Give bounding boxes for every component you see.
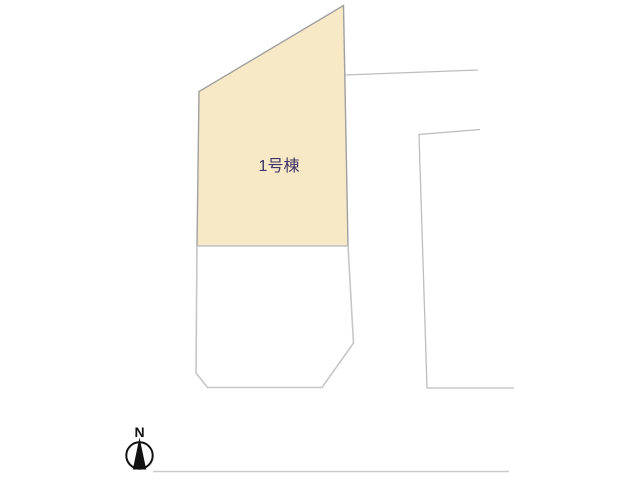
road-boundary-right <box>419 130 514 389</box>
site-plan: 1号棟 N <box>0 0 640 480</box>
road-boundary-upper <box>345 70 478 75</box>
compass-north-label: N <box>134 424 144 440</box>
lot-1-label: 1号棟 <box>259 157 300 175</box>
lot-2-shape <box>196 246 354 388</box>
compass: N <box>126 424 152 470</box>
lot-1-shape <box>197 6 348 247</box>
